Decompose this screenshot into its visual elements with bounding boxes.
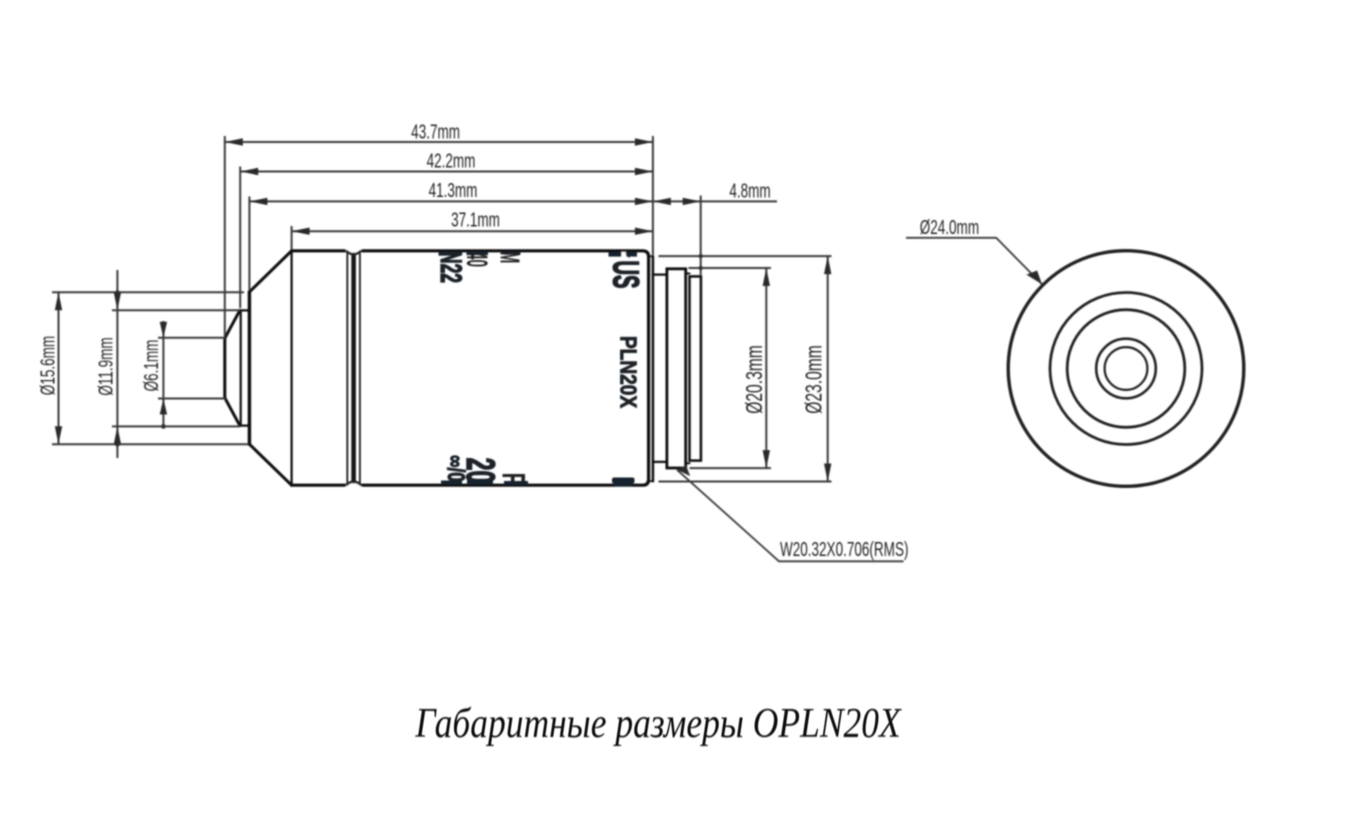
svg-text:US: US xyxy=(605,261,644,289)
svg-text:42.2mm: 42.2mm xyxy=(427,149,476,173)
svg-text:M: M xyxy=(494,252,526,264)
svg-text:41.3mm: 41.3mm xyxy=(429,178,478,202)
svg-text:Ø15.6mm: Ø15.6mm xyxy=(36,336,60,395)
svg-text:Ø6.1mm: Ø6.1mm xyxy=(139,340,163,392)
svg-text:40: 40 xyxy=(461,252,495,267)
svg-text:Ø23.0mm: Ø23.0mm xyxy=(802,345,828,414)
svg-text:4.8mm: 4.8mm xyxy=(729,178,770,202)
svg-text:37.1mm: 37.1mm xyxy=(451,208,500,232)
svg-text:Ø11.9mm: Ø11.9mm xyxy=(94,337,118,395)
svg-text:PLN20X: PLN20X xyxy=(615,336,640,408)
svg-text:Ø24.0mm: Ø24.0mm xyxy=(920,215,979,239)
svg-text:Габаритные размеры OPLN20X: Габаритные размеры OPLN20X xyxy=(414,700,901,746)
svg-text:Ø20.3mm: Ø20.3mm xyxy=(742,345,768,414)
svg-text:43.7mm: 43.7mm xyxy=(411,119,460,143)
svg-text:W20.32X0.706(RMS): W20.32X0.706(RMS) xyxy=(780,537,909,561)
